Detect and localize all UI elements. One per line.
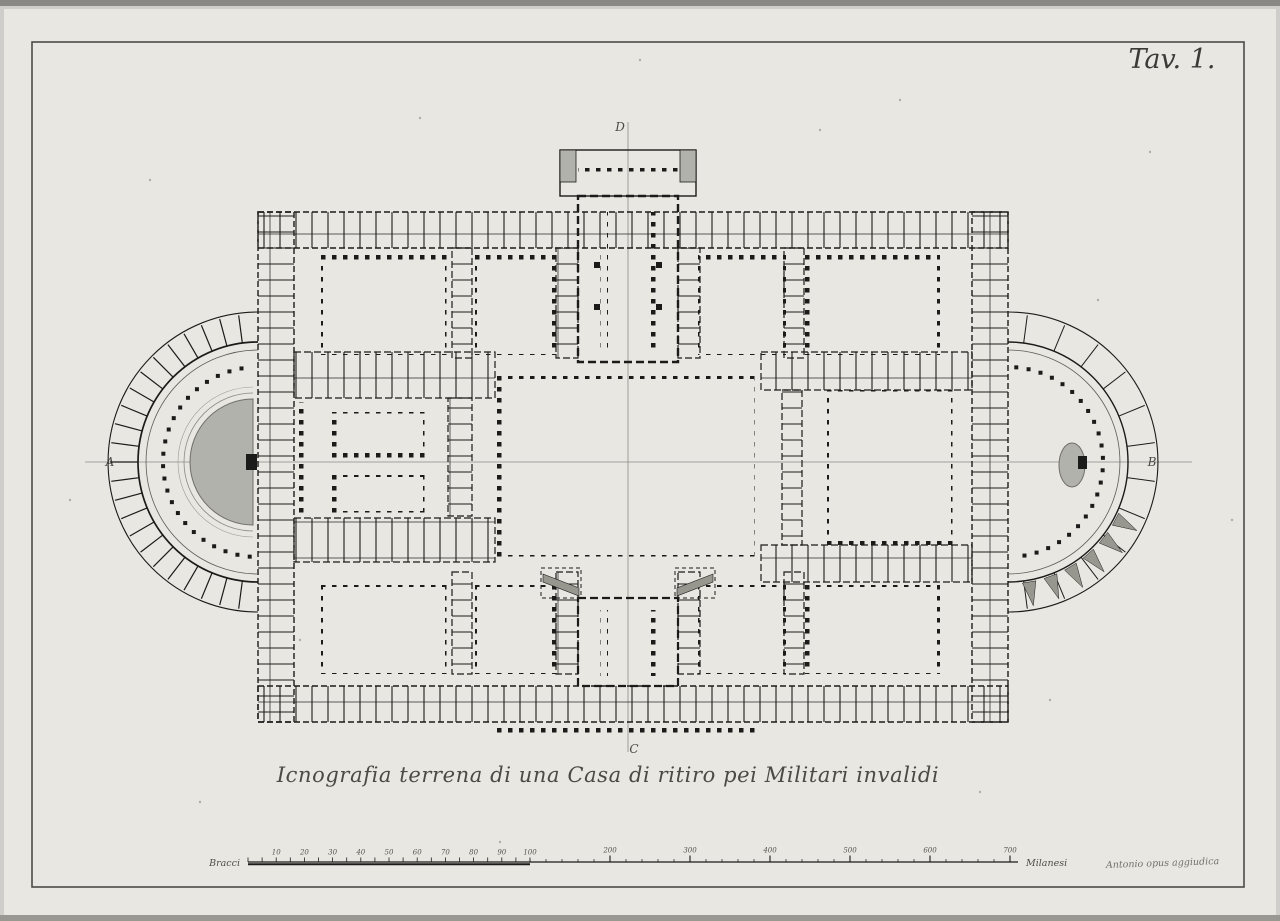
- portico-pylon-right: [680, 150, 696, 182]
- scale-minor-label: 30: [328, 849, 337, 857]
- scale-unit-left: Bracci: [208, 858, 240, 869]
- south-hall-colonnade-right: [648, 610, 656, 676]
- south-portico-colonnade: [495, 726, 761, 735]
- scale-unit-right: Milanesi: [1025, 858, 1067, 869]
- axis-letter-b: B: [1147, 455, 1157, 469]
- scale-minor-label: 40: [355, 849, 365, 857]
- scale-minor-label: 20: [299, 849, 309, 857]
- apse-altar: [1078, 456, 1087, 469]
- scale-major-label: 400: [762, 847, 777, 855]
- scale-minor-label: 60: [413, 849, 422, 857]
- axis-letter-d: D: [614, 120, 625, 134]
- photo-edge-bottom: [0, 915, 1280, 921]
- scanned-plate: Tav. 1. A B D C: [0, 0, 1280, 921]
- scale-major-label: 700: [1003, 847, 1017, 855]
- plate-caption: Icnografia terrena di una Casa di ritiro…: [276, 763, 939, 787]
- west-corridor-colonnade: [298, 402, 306, 514]
- scale-minor-label: 50: [385, 849, 394, 857]
- scale-minor-label: 70: [441, 849, 450, 857]
- plan-drawing: Tav. 1. A B D C: [0, 0, 1280, 921]
- scale-major-label: 300: [683, 847, 697, 855]
- scale-minor-label: 80: [469, 849, 478, 857]
- photo-edge-top: [0, 0, 1280, 6]
- scale-minor-label: 100: [523, 849, 537, 857]
- nave-colonnade-left: [600, 212, 608, 350]
- scale-major-label: 600: [923, 847, 937, 855]
- south-hall-colonnade-left: [600, 610, 608, 676]
- scale-major-label: 200: [602, 847, 617, 855]
- exedra-altar: [246, 454, 257, 470]
- nave-colonnade-right: [648, 212, 656, 350]
- scale-minor-label: 10: [272, 849, 281, 857]
- portico-pylon-left: [560, 150, 576, 182]
- portico-columns: [578, 168, 678, 176]
- axis-letter-c: C: [629, 742, 638, 756]
- plate-number: Tav. 1.: [1129, 44, 1216, 75]
- scale-major-label: 500: [843, 847, 857, 855]
- scale-minor-label: 90: [497, 849, 506, 857]
